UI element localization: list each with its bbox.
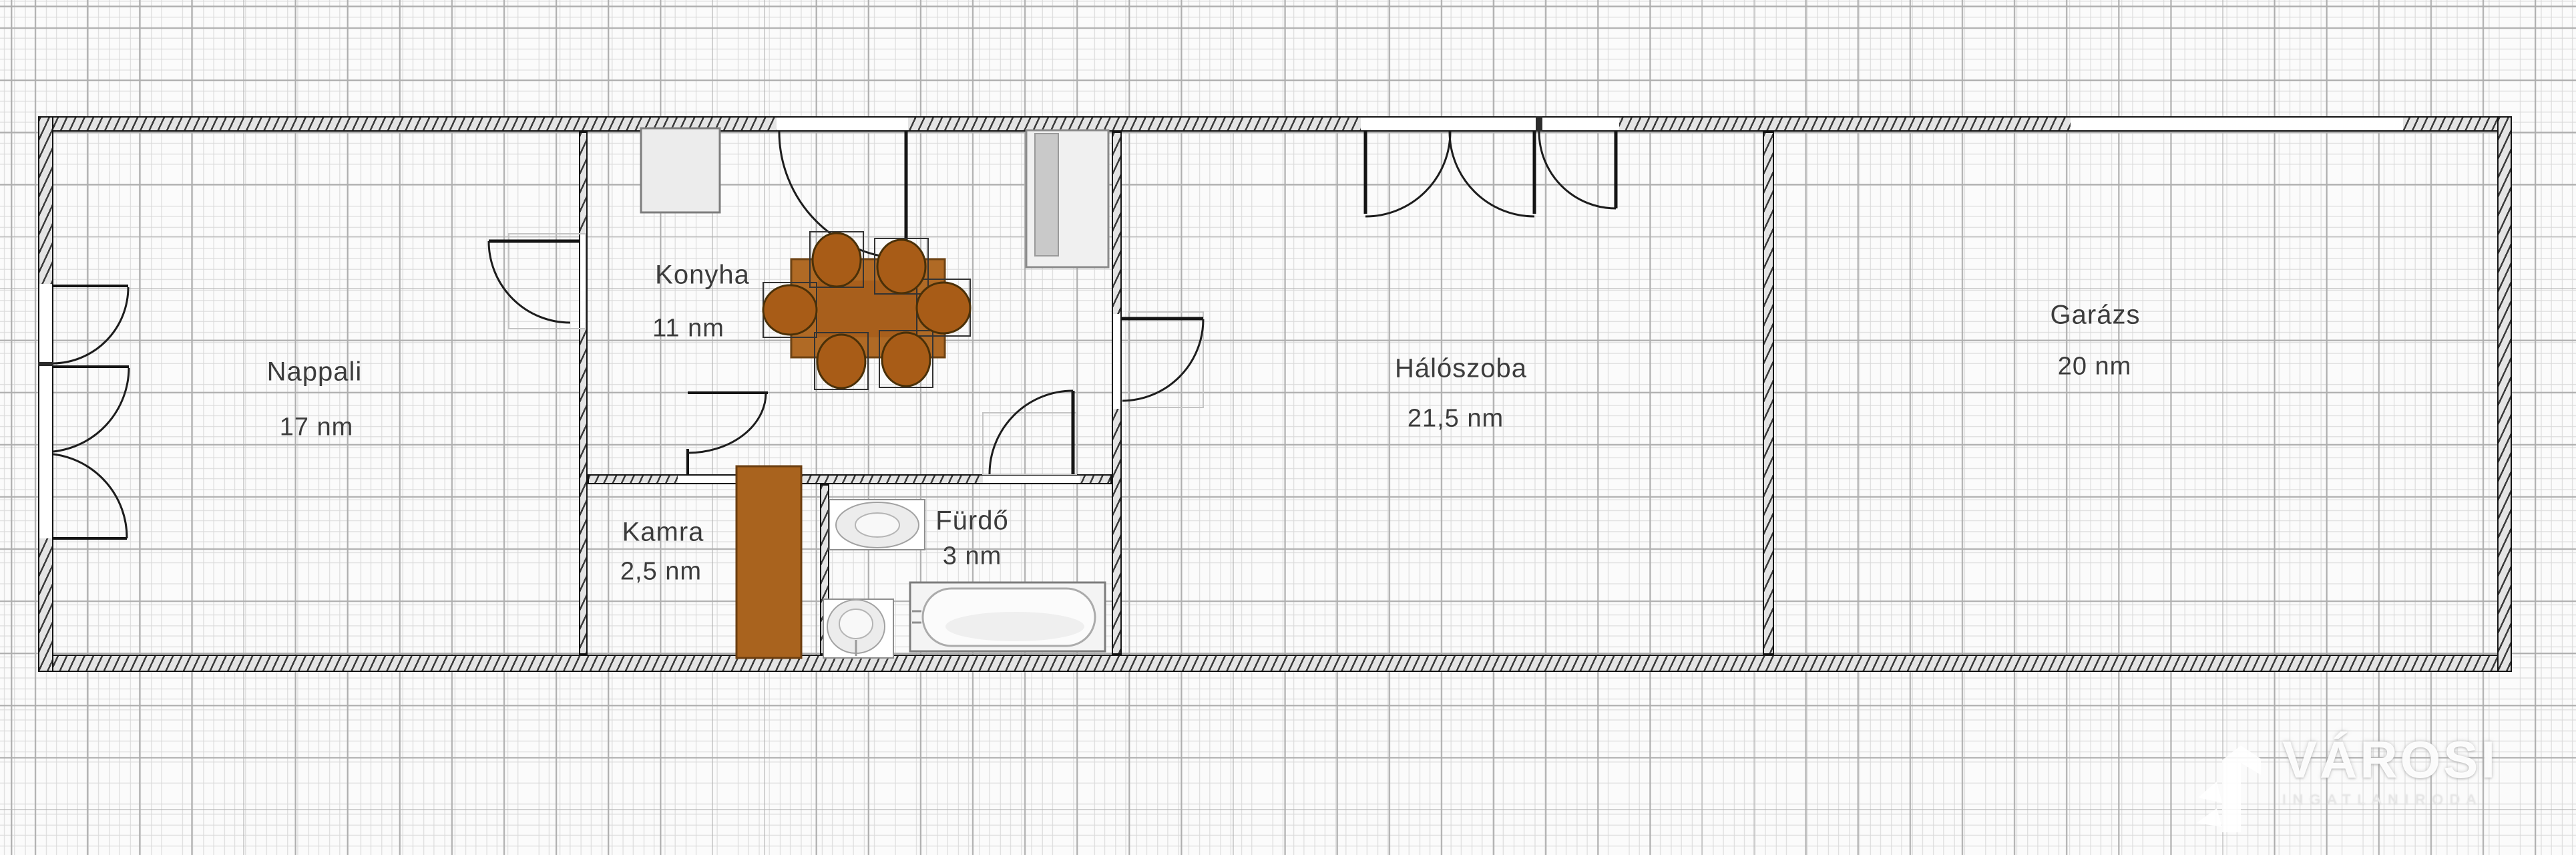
pantry-cabinet <box>736 466 801 658</box>
watermark-tagline: INGATLANIRODA <box>2282 792 2498 808</box>
opening-door-furdo <box>983 474 1080 484</box>
watermark-house-shape <box>2222 745 2261 832</box>
area-kamra: 2,5 nm <box>620 558 702 586</box>
area-konyha: 11 nm <box>652 315 724 343</box>
label-konyha: Konyha <box>655 261 750 291</box>
chair-boxes <box>763 232 970 389</box>
window-sash-arc-1 <box>53 287 128 363</box>
toilet-bowl <box>827 600 885 653</box>
bathtub-water-shade <box>945 612 1084 641</box>
chair-bottom-right <box>882 333 930 386</box>
chair-box-bottom-right <box>879 331 933 387</box>
door-swing-box-haloszoba <box>1128 312 1203 407</box>
haloszoba-door-arc <box>1122 319 1203 401</box>
area-furdo: 3 nm <box>943 542 1002 571</box>
window-sash-arc-2 <box>53 368 129 452</box>
wall-nappali-konyha <box>579 132 588 655</box>
opening-french-window <box>1361 116 1536 132</box>
sink-basin-inner <box>855 513 899 537</box>
door-swing-box-furdo <box>983 413 1076 474</box>
watermark-brand: VÁROSI <box>2282 733 2498 786</box>
window-nappali-mullion <box>38 362 53 366</box>
chair-box-bottom-left <box>815 333 868 389</box>
french-window-arc-right <box>1450 132 1534 216</box>
watermark-wing-bottom <box>2197 808 2222 827</box>
chair-box-top-left <box>810 232 863 287</box>
chair-box-top-right <box>875 238 928 294</box>
label-garazs: Garázs <box>2051 301 2141 331</box>
dining-table <box>791 259 945 357</box>
area-haloszoba: 21,5 nm <box>1408 405 1504 434</box>
bathtub-box <box>910 582 1105 651</box>
chair-bottom-left <box>817 335 865 388</box>
wall-haloszoba-garazs <box>1763 132 1774 655</box>
watermark-text: VÁROSI INGATLANIRODA <box>2282 733 2498 808</box>
furdo-door-arc <box>990 391 1073 474</box>
window-sash-arc-3 <box>53 454 127 538</box>
watermark-house-icon <box>2197 733 2270 834</box>
opening-door-kamra <box>678 474 741 484</box>
opening-door-haloszoba <box>1112 314 1122 409</box>
label-kamra: Kamra <box>622 518 704 548</box>
opening-window-haloszoba <box>1542 116 1619 132</box>
sink-basin <box>836 502 919 548</box>
kitchen-cabinet <box>1026 130 1108 267</box>
dining-table-shade <box>818 281 918 337</box>
french-window-arc-left <box>1365 132 1450 216</box>
watermark: VÁROSI INGATLANIRODA <box>2197 733 2561 844</box>
label-haloszoba: Hálószoba <box>1395 354 1527 384</box>
sink-counter <box>829 500 925 550</box>
chair-left <box>763 285 817 335</box>
chair-right <box>917 283 970 333</box>
floorplan-canvas: Nappali 17 nm Konyha 11 nm Kamra 2,5 nm … <box>0 0 2576 855</box>
nappali-door-arc <box>489 241 570 323</box>
chair-top-left <box>813 233 861 287</box>
wall-kamra-furdo-divider <box>820 484 829 655</box>
area-garazs: 20 nm <box>2058 353 2132 381</box>
chair-seats <box>763 233 970 388</box>
door-swing-box-nappali <box>509 234 586 329</box>
fridge-counter <box>641 128 720 212</box>
opening-entry-door <box>777 116 908 132</box>
window-mullion <box>1536 116 1542 132</box>
wall-exterior-right <box>2497 116 2512 672</box>
label-furdo: Fürdő <box>935 506 1009 536</box>
watermark-wing-top <box>2198 782 2222 803</box>
chair-top-right <box>877 240 925 293</box>
label-nappali: Nappali <box>267 357 363 387</box>
entry-door-arc <box>779 132 906 259</box>
opening-door-nappali <box>579 234 588 329</box>
toilet-box <box>823 599 893 658</box>
opening-garage-door <box>2071 116 2403 132</box>
kitchen-cabinet-shelf <box>1035 134 1058 256</box>
bathtub-basin <box>923 588 1095 646</box>
opening-window-nappali <box>38 284 53 538</box>
chair-box-left <box>763 283 817 337</box>
kamra-door-arc <box>688 394 766 453</box>
wall-exterior-bottom <box>38 655 2512 672</box>
window-haloszoba-arc <box>1539 132 1616 208</box>
chair-box-right <box>917 279 970 336</box>
area-nappali: 17 nm <box>280 413 354 442</box>
toilet-bowl-inner <box>839 609 873 639</box>
